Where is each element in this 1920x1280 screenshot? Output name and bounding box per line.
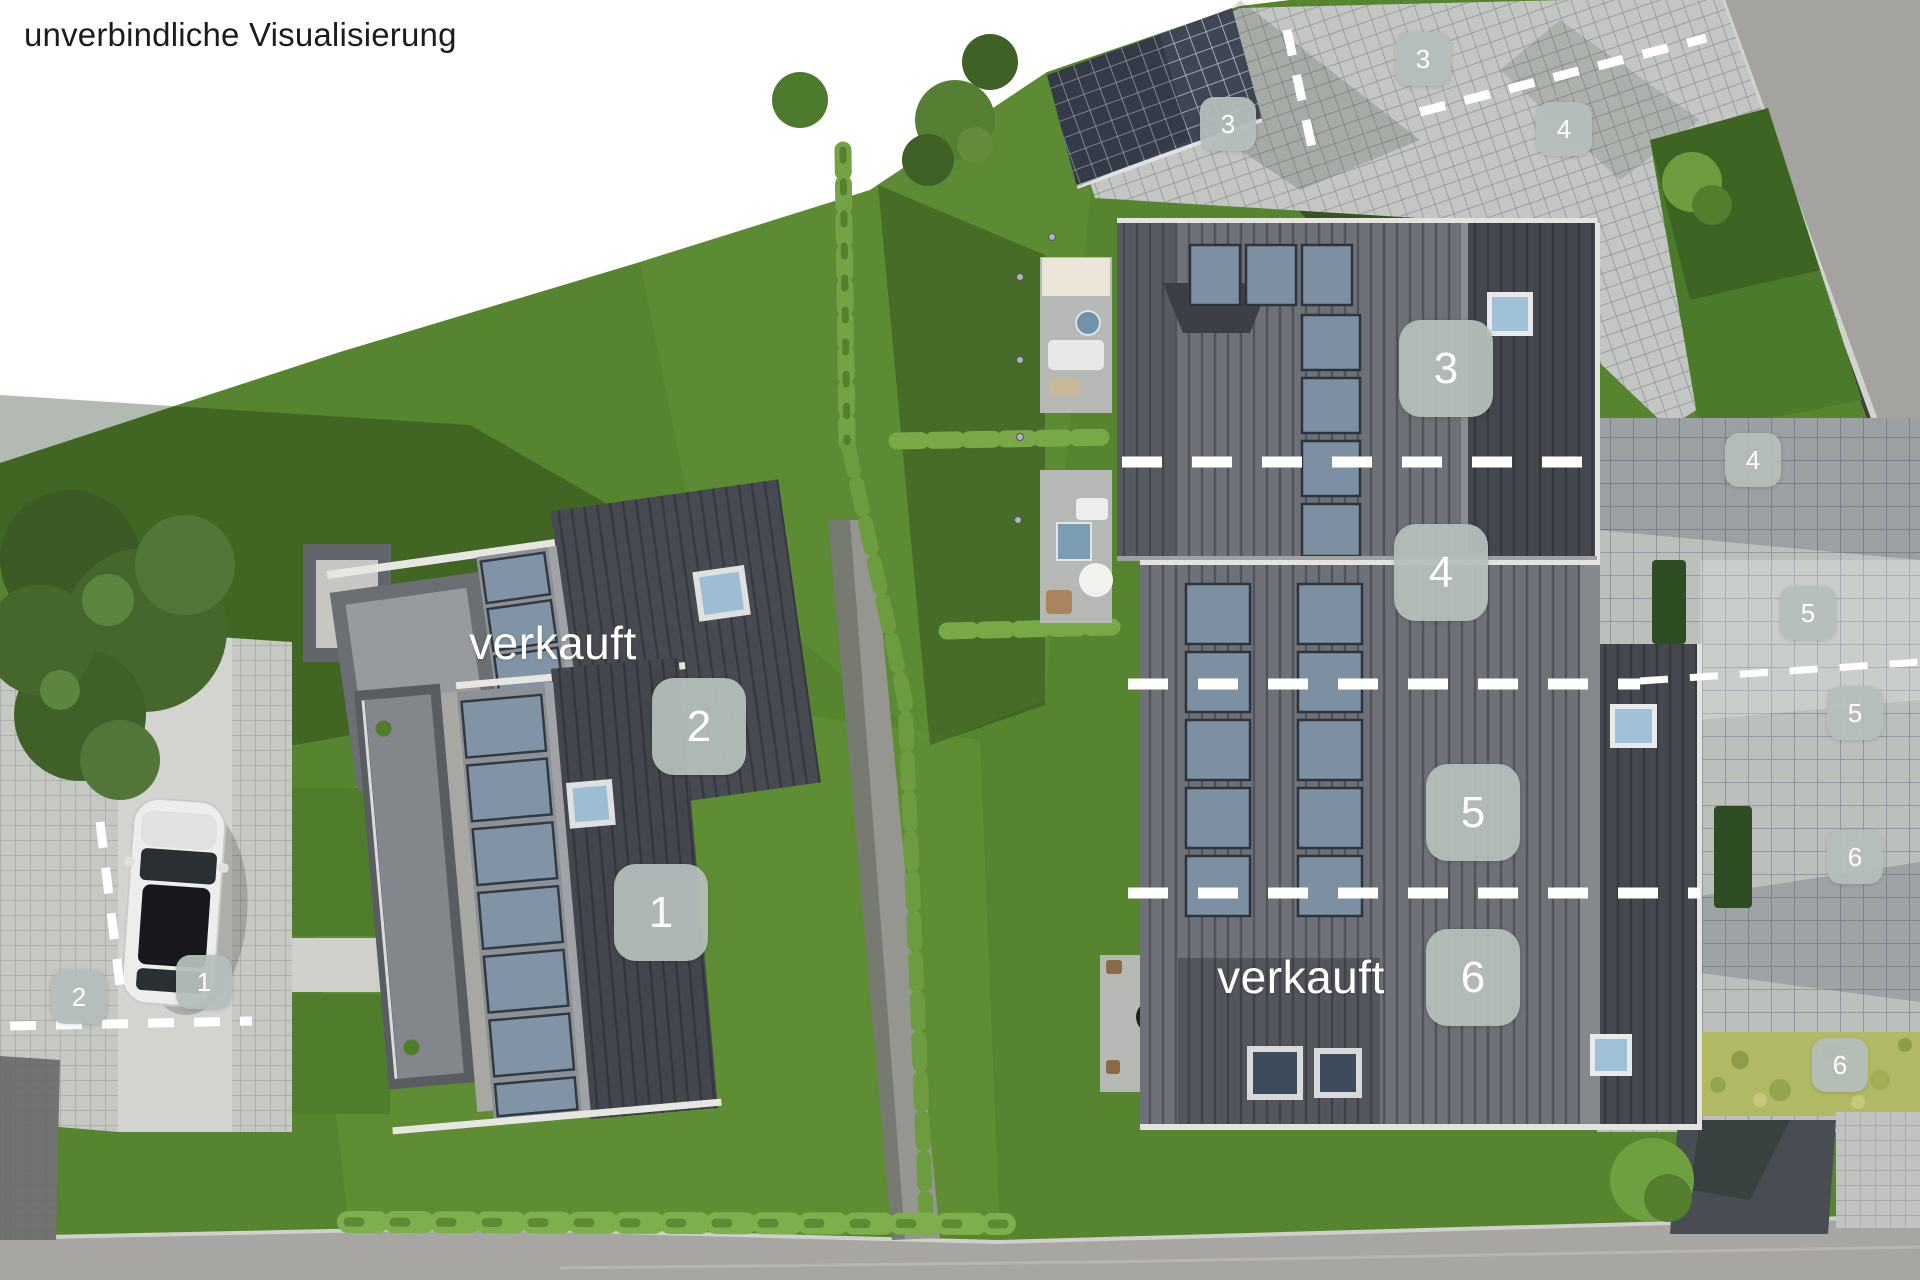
- meadow: [1702, 1032, 1920, 1116]
- driveway-bottom-right: [1670, 1112, 1920, 1234]
- parking-badge-2-left: 2: [51, 970, 107, 1024]
- house-lower-right: [1140, 560, 1702, 1130]
- unit-badge-5[interactable]: 5: [1426, 764, 1520, 861]
- unit-badge-1[interactable]: 1: [614, 864, 708, 961]
- parking-badge-4-top: 4: [1536, 102, 1592, 156]
- unit-badge-2[interactable]: 2: [652, 678, 746, 775]
- terrace-lower: [1040, 470, 1113, 623]
- sold-label-house-left: verkauft: [448, 616, 658, 670]
- parking-badge-1-left: 1: [176, 955, 232, 1009]
- parking-badge-4-right: 4: [1725, 433, 1781, 487]
- parking-badge-5-lower: 5: [1827, 686, 1883, 740]
- sold-label-house-right: verkauft: [1196, 950, 1406, 1004]
- terrace-upper: [1040, 257, 1112, 413]
- disclaimer-title: unverbindliche Visualisierung: [24, 16, 457, 54]
- parking-badge-5-upper: 5: [1780, 586, 1836, 640]
- unit-badge-6[interactable]: 6: [1426, 929, 1520, 1026]
- unit-badge-3[interactable]: 3: [1399, 320, 1493, 417]
- parking-badge-6-upper: 6: [1827, 830, 1883, 884]
- parking-badge-6-meadow: 6: [1812, 1038, 1868, 1092]
- parking-badge-3-top: 3: [1395, 32, 1451, 86]
- unit-badge-4[interactable]: 4: [1394, 524, 1488, 621]
- house-upper-right: [1117, 218, 1600, 561]
- aerial-rendering: [0, 0, 1920, 1280]
- site-plan-visualization: unverbindliche Visualisierung verkauft v…: [0, 0, 1920, 1280]
- carport-badge-3: 3: [1200, 97, 1256, 151]
- bush-bottom-right-shade: [1644, 1174, 1692, 1222]
